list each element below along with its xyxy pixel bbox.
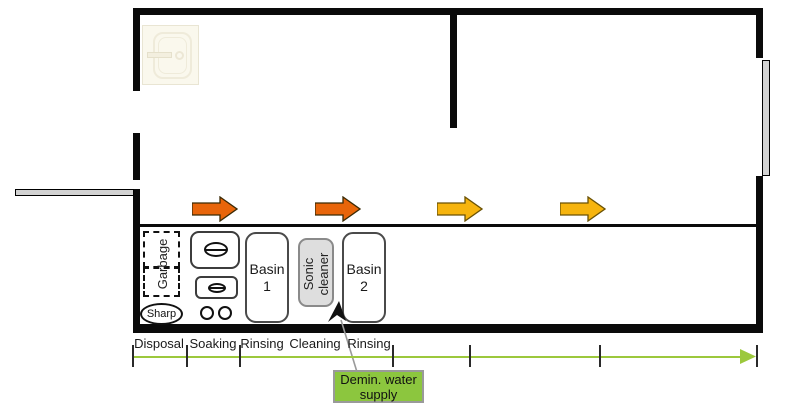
timeline-tick	[469, 345, 471, 367]
wall-left-middle	[133, 133, 140, 180]
wall-left-upper	[133, 8, 140, 91]
stage-label-soaking: Soaking	[190, 336, 237, 351]
demin-water-supply-label: Demin. water supply	[337, 372, 421, 402]
sink-clipart-icon	[142, 25, 199, 85]
stage-label-rinsing-2: Rinsing	[347, 336, 390, 351]
stage-label-rinsing-1: Rinsing	[240, 336, 283, 351]
timeline-line	[133, 356, 749, 358]
door-left-leaf	[15, 189, 134, 196]
sharp-label: Sharp	[147, 308, 176, 320]
sink-drain-circle	[175, 51, 184, 60]
floorplan-diagram: Garbage Sharp Basin 1 Sonic cleaner Basi…	[0, 0, 800, 419]
basin-1: Basin 1	[245, 232, 289, 323]
wall-bottom	[133, 324, 763, 333]
timeline-tick	[186, 345, 188, 367]
timeline-tick	[599, 345, 601, 367]
door-right-leaf	[762, 60, 770, 176]
stage-label-cleaning: Cleaning	[289, 336, 340, 351]
wall-interior-divider	[450, 8, 457, 128]
timeline-arrowhead-icon	[740, 349, 757, 365]
drain-plug-icon	[204, 242, 228, 257]
sharp-container: Sharp	[140, 303, 183, 325]
flow-arrow-right-icon	[437, 196, 483, 222]
sink-faucet-bar	[147, 52, 172, 58]
soak-sink-large	[190, 231, 240, 269]
timeline-tick	[756, 345, 758, 367]
basin-2-label: Basin 2	[345, 261, 383, 295]
stage-label-disposal: Disposal	[134, 336, 184, 351]
wall-right-lower	[756, 176, 763, 333]
flow-arrow-right-icon	[315, 196, 361, 222]
drain-slit	[205, 249, 227, 251]
wall-right-upper	[756, 8, 763, 58]
flow-arrow-4	[560, 197, 605, 221]
wall-left-lower	[133, 189, 140, 333]
flow-arrow-right-icon	[192, 196, 238, 222]
basin-1-label: Basin 1	[248, 261, 286, 295]
tap-knob-icon	[200, 306, 214, 320]
tap-knob-icon	[218, 306, 232, 320]
flow-arrow-3	[437, 197, 482, 221]
counter-top-edge	[140, 224, 756, 227]
wall-top	[133, 8, 763, 15]
garbage-label-wrap: Garbage	[144, 231, 180, 297]
soak-sink-small	[195, 276, 238, 299]
demin-water-supply-box: Demin. water supply	[333, 370, 424, 403]
timeline-tick	[392, 345, 394, 367]
drain-slit	[209, 287, 225, 289]
flow-arrow-right-icon	[560, 196, 606, 222]
flow-arrow-1	[192, 197, 237, 221]
flow-arrow-2	[315, 197, 360, 221]
drain-plug-icon	[208, 283, 226, 293]
demin-nozzle-icon	[328, 301, 346, 322]
garbage-label: Garbage	[144, 231, 180, 297]
